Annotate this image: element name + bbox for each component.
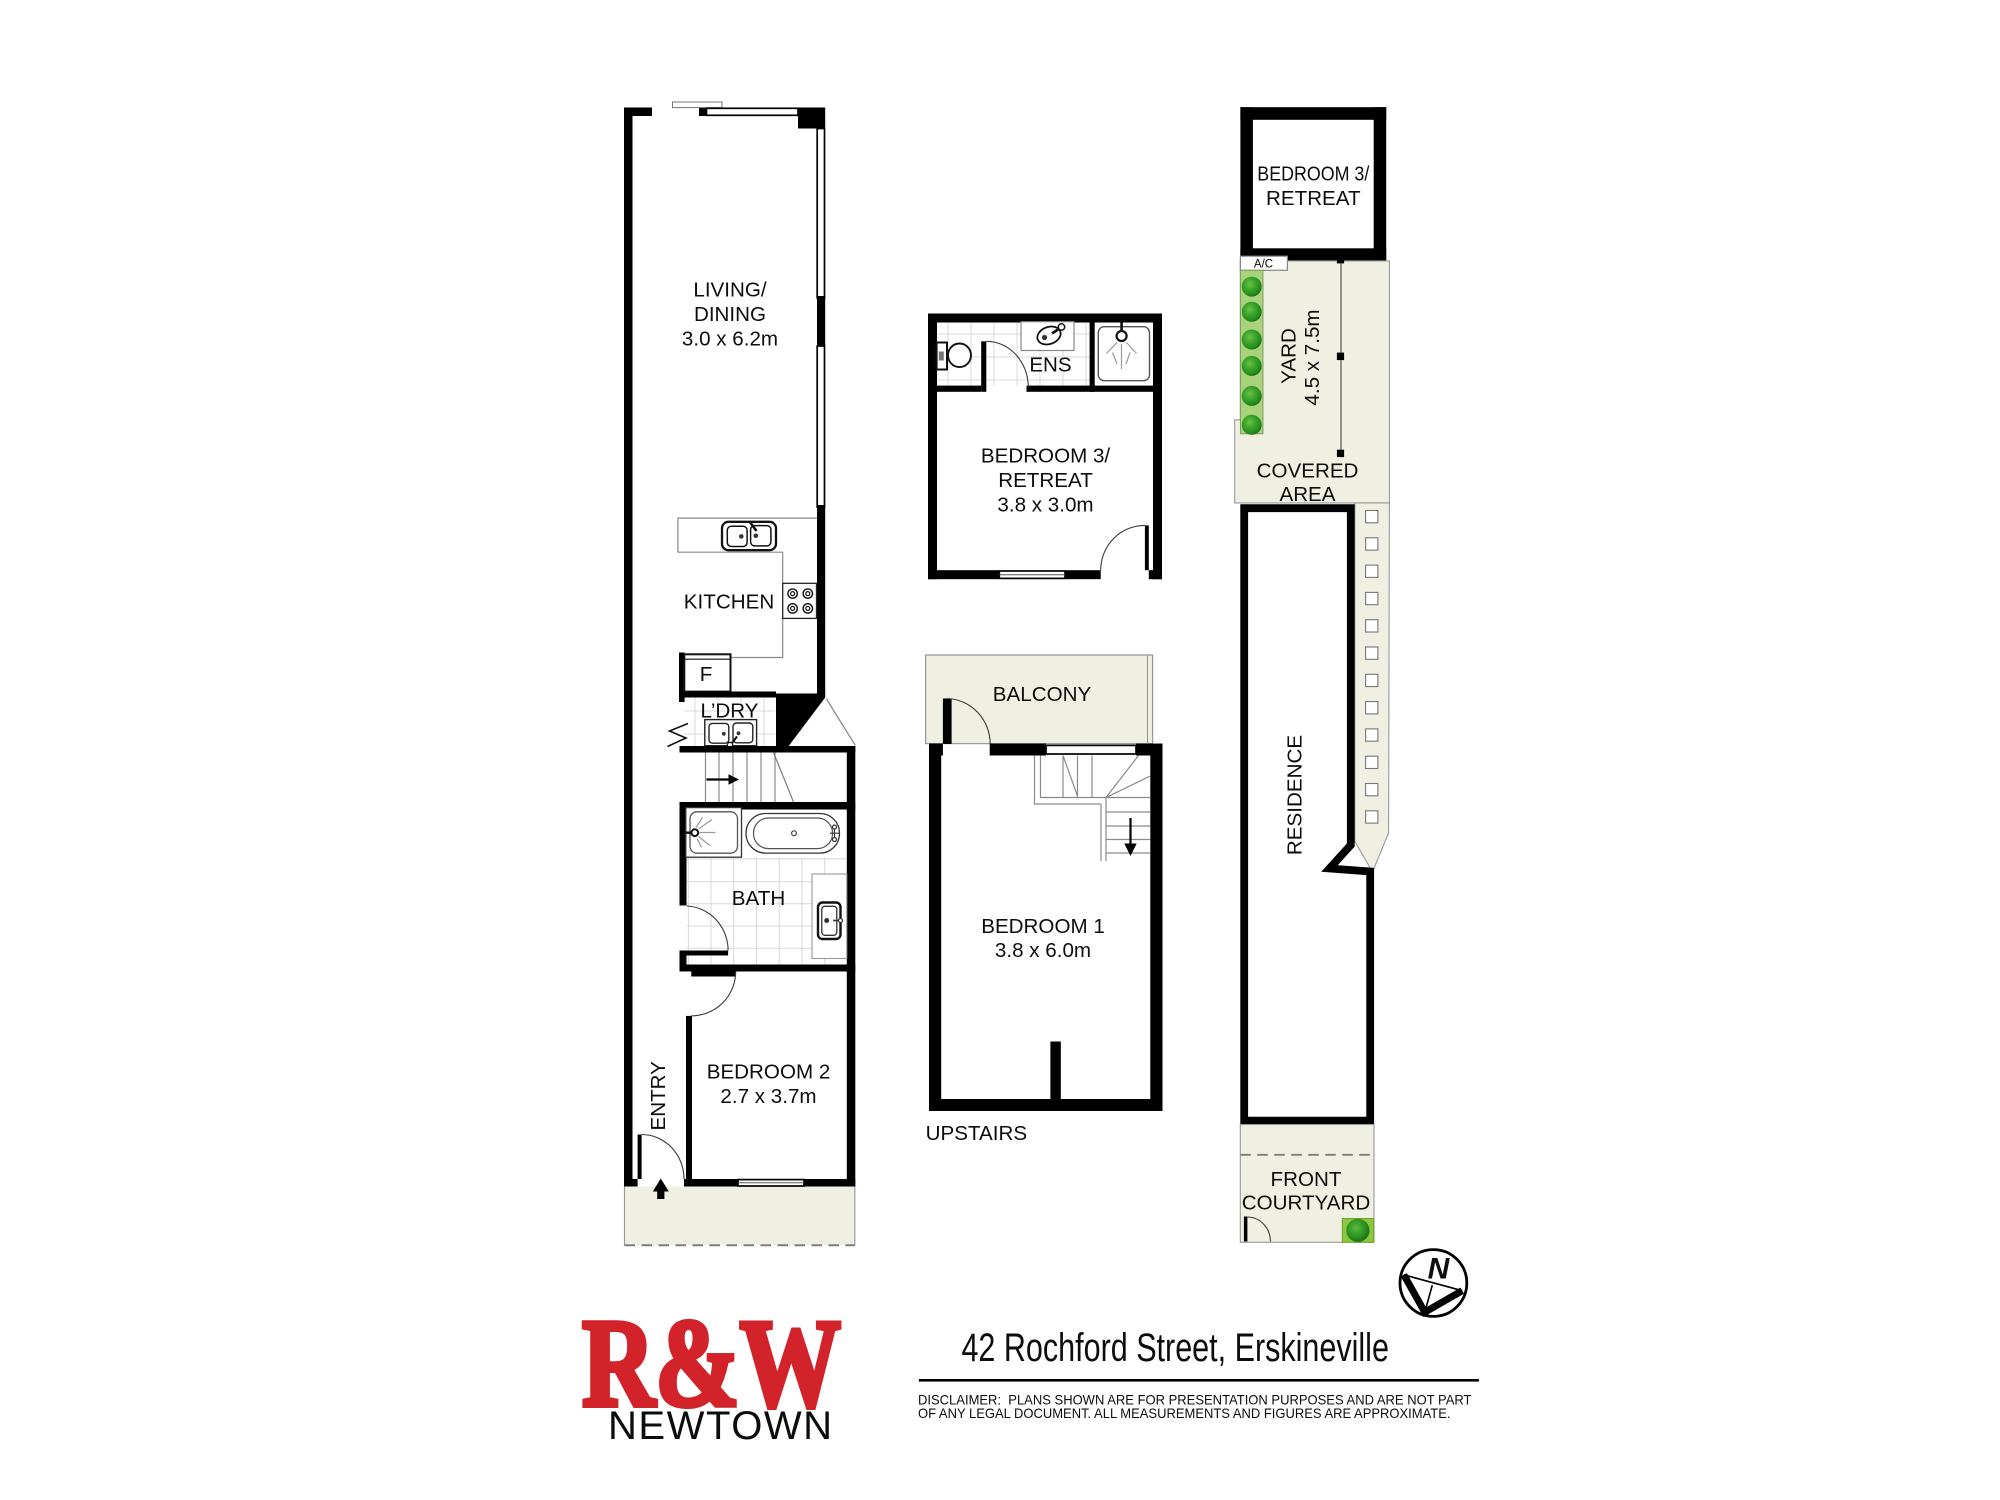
svg-text:ENS: ENS bbox=[1029, 354, 1071, 377]
svg-text:BEDROOM 2: BEDROOM 2 bbox=[707, 1061, 831, 1084]
svg-text:COVERED: COVERED bbox=[1257, 460, 1359, 483]
svg-text:2.7 x 3.7m: 2.7 x 3.7m bbox=[720, 1085, 816, 1108]
svg-text:YARD: YARD bbox=[1278, 328, 1301, 384]
svg-text:3.0 x 6.2m: 3.0 x 6.2m bbox=[682, 328, 778, 351]
svg-text:DINING: DINING bbox=[694, 303, 766, 326]
svg-text:BEDROOM 3/: BEDROOM 3/ bbox=[981, 445, 1111, 468]
svg-text:BEDROOM 1: BEDROOM 1 bbox=[981, 915, 1105, 938]
svg-text:BEDROOM 3/: BEDROOM 3/ bbox=[1257, 163, 1369, 186]
svg-text:AREA: AREA bbox=[1279, 483, 1335, 506]
svg-text:BALCONY: BALCONY bbox=[993, 683, 1092, 706]
svg-text:FRONT: FRONT bbox=[1271, 1168, 1342, 1191]
svg-text:ENTRY: ENTRY bbox=[647, 1061, 670, 1131]
svg-text:UPSTAIRS: UPSTAIRS bbox=[926, 1122, 1027, 1145]
svg-text:42 Rochford Street, Erskinevil: 42 Rochford Street, Erskineville bbox=[961, 1326, 1389, 1370]
svg-text:RETREAT: RETREAT bbox=[1266, 187, 1361, 210]
svg-text:OF ANY LEGAL DOCUMENT. ALL MEA: OF ANY LEGAL DOCUMENT. ALL MEASUREMENTS … bbox=[918, 1406, 1451, 1421]
svg-text:3.8 x 3.0m: 3.8 x 3.0m bbox=[997, 494, 1093, 517]
svg-text:BATH: BATH bbox=[732, 887, 785, 910]
svg-text:N: N bbox=[1428, 1253, 1451, 1286]
svg-text:F: F bbox=[700, 663, 713, 686]
svg-text:NEWTOWN: NEWTOWN bbox=[608, 1404, 834, 1448]
svg-text:LIVING/: LIVING/ bbox=[693, 279, 767, 302]
svg-text:3.8 x 6.0m: 3.8 x 6.0m bbox=[995, 939, 1091, 962]
svg-text:A/C: A/C bbox=[1254, 259, 1273, 271]
svg-text:RETREAT: RETREAT bbox=[998, 469, 1093, 492]
svg-text:RESIDENCE: RESIDENCE bbox=[1284, 735, 1307, 855]
svg-text:COURTYARD: COURTYARD bbox=[1242, 1192, 1371, 1215]
svg-text:4.5 x 7.5m: 4.5 x 7.5m bbox=[1301, 309, 1324, 405]
svg-text:KITCHEN: KITCHEN bbox=[684, 591, 774, 614]
